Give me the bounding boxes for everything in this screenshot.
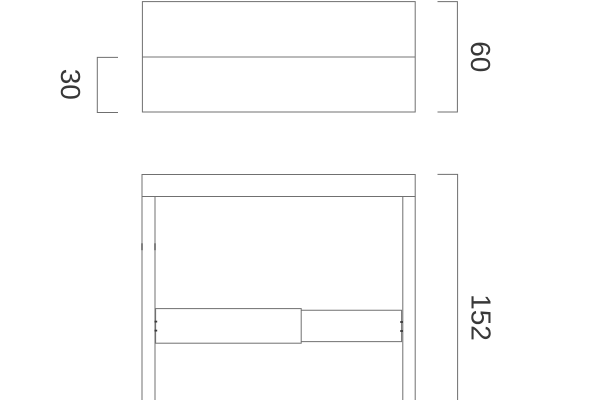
svg-text:30: 30: [55, 69, 86, 100]
svg-text:152: 152: [465, 294, 496, 341]
svg-text:60: 60: [465, 41, 496, 72]
